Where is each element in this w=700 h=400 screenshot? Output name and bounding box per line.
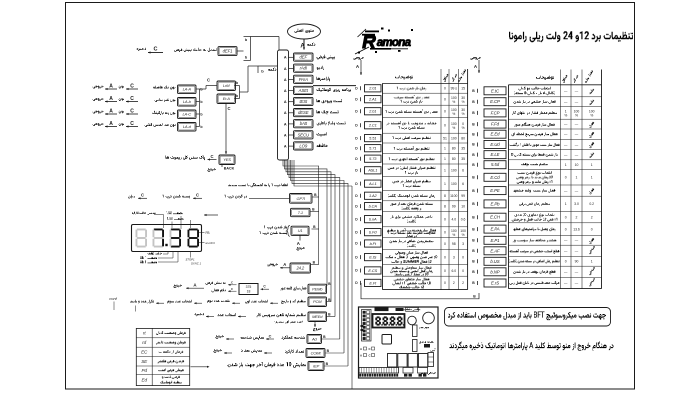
svg-text:E.PA: E.PA — [490, 227, 499, 232]
svg-text:%: % — [590, 114, 593, 118]
svg-text:0: 0 — [444, 124, 446, 128]
svg-text:%: % — [452, 100, 455, 104]
svg-text:0: 0 — [444, 230, 446, 234]
svg-text:E.CS: E.CS — [368, 268, 377, 273]
svg-text:13.6: 13.6 — [573, 227, 580, 231]
svg-text:conf: conf — [109, 296, 117, 301]
svg-text:E.tC: E.tC — [491, 88, 500, 93]
svg-text:SE: SE — [141, 359, 148, 364]
svg-text:LrM: LrM — [223, 83, 230, 88]
svg-text:tESt: tESt — [299, 99, 307, 104]
svg-text:A: A — [360, 353, 362, 357]
svg-text:—: — — [564, 270, 568, 274]
svg-text:A: A — [109, 109, 113, 115]
svg-text:7-1: 7-1 — [298, 210, 303, 215]
svg-text:1100: 1100 — [450, 194, 457, 198]
svg-text:5.71: 5.71 — [369, 146, 376, 151]
svg-text:U1: U1 — [298, 228, 303, 233]
svg-text:dESE: dESE — [298, 110, 309, 115]
svg-text:1: 1 — [444, 182, 446, 186]
svg-text:C: C — [130, 109, 134, 115]
svg-text:100: 100 — [451, 136, 457, 140]
svg-text:Ad: Ad — [311, 336, 318, 341]
svg-text:3: 3 — [462, 242, 464, 246]
svg-text:1: 1 — [565, 202, 567, 206]
svg-text:EC: EC — [141, 350, 148, 355]
svg-text:1: 1 — [591, 176, 593, 180]
svg-text:0: 0 — [591, 227, 593, 231]
svg-text:0: 0 — [462, 269, 464, 273]
svg-text:5.51: 5.51 — [369, 136, 376, 141]
svg-text:0: 0 — [444, 242, 446, 246]
svg-text:SECU: SECU — [298, 132, 310, 137]
svg-text:4.0: 4.0 — [451, 217, 456, 221]
svg-text:2: 2 — [453, 281, 455, 285]
svg-text:C: C — [130, 121, 134, 127]
svg-text:E.AF: E.AF — [490, 248, 500, 253]
svg-text:0: 0 — [444, 255, 446, 259]
svg-text:C: C — [207, 78, 210, 83]
svg-text:b.CA: b.CA — [369, 204, 378, 209]
svg-text:C: C — [154, 47, 158, 53]
svg-text:b.oA: b.oA — [369, 217, 377, 222]
svg-text:%: % — [462, 112, 465, 116]
svg-text:0: 0 — [565, 227, 567, 231]
svg-text:rEP: rEP — [313, 363, 320, 368]
svg-text:LA-C: LA-C — [182, 112, 191, 117]
svg-text:—: — — [564, 122, 568, 126]
svg-text:1: 1 — [591, 260, 593, 264]
svg-text:5.5d: 5.5d — [491, 162, 500, 167]
svg-text:80: 80 — [461, 136, 465, 140]
svg-text:2.A1: 2.A1 — [368, 97, 377, 102]
svg-text:dEF1: dEF1 — [223, 49, 233, 54]
svg-text:0: 0 — [444, 217, 446, 221]
svg-text:0: 0 — [444, 281, 446, 285]
svg-text:b.NP: b.NP — [490, 269, 499, 274]
svg-text:Pd: Pd — [141, 368, 147, 373]
svg-text:b.Ft: b.Ft — [370, 241, 377, 246]
svg-text:LA-d: LA-d — [183, 124, 192, 129]
svg-text:bAtt: bAtt — [300, 121, 308, 126]
svg-text:rAdI: rAdI — [300, 66, 308, 71]
svg-text:E.CH: E.CH — [490, 215, 501, 220]
svg-text:C: C — [231, 287, 233, 291]
svg-text:C: C — [231, 280, 233, 284]
svg-text:1: 1 — [444, 147, 446, 151]
svg-text:A: A — [284, 56, 287, 60]
svg-text:FB: FB — [205, 231, 209, 235]
svg-text:2.01: 2.01 — [368, 86, 376, 91]
svg-text:E.P1: E.P1 — [491, 238, 501, 243]
svg-text:A: A — [109, 96, 113, 102]
svg-text:—: — — [564, 189, 568, 193]
svg-text:—: — — [564, 239, 568, 243]
svg-text:80: 80 — [452, 157, 456, 161]
svg-text:A: A — [360, 347, 362, 351]
svg-text:35: 35 — [461, 147, 465, 151]
svg-text:%: % — [462, 233, 465, 237]
svg-text:Er.A: Er.A — [223, 96, 231, 101]
svg-text:1: 1 — [576, 176, 578, 180]
svg-text:6: 6 — [462, 182, 464, 186]
svg-text:C: C — [368, 353, 370, 357]
svg-text:0: 0 — [444, 110, 446, 114]
svg-text:b.US: b.US — [490, 259, 499, 264]
svg-text:1: 1 — [444, 169, 446, 173]
svg-text:1: 1 — [444, 157, 446, 161]
svg-text:35: 35 — [461, 157, 465, 161]
svg-text:51: 51 — [443, 136, 447, 140]
svg-text:E.tS: E.tS — [369, 255, 376, 260]
svg-text:%: % — [462, 126, 465, 130]
svg-text:LA-A: LA-A — [183, 87, 192, 92]
svg-text:E.CP: E.CP — [490, 99, 500, 104]
svg-text:0: 0 — [565, 216, 567, 220]
svg-text:E.Ft: E.Ft — [369, 280, 377, 285]
svg-text:E.rS: E.rS — [491, 281, 499, 286]
svg-text:A: A — [109, 84, 113, 90]
svg-text:2: 2 — [576, 216, 578, 220]
svg-text:0.6: 0.6 — [461, 217, 466, 221]
svg-text:0: 0 — [444, 98, 446, 102]
svg-text:E.Ud: E.Ud — [490, 142, 500, 147]
svg-text:15: 15 — [461, 87, 465, 91]
svg-text:99: 99 — [452, 204, 456, 208]
svg-text:LA-b: LA-b — [183, 99, 192, 104]
svg-text:A: A — [284, 67, 287, 71]
svg-text:—: — — [564, 133, 568, 137]
svg-text:MEEd: MEEd — [312, 314, 323, 319]
svg-text:E.LE: E.LE — [491, 152, 500, 157]
svg-text:COMt: COMt — [311, 350, 322, 355]
svg-text:A: A — [284, 89, 287, 93]
svg-text:%: % — [462, 100, 465, 104]
svg-text:100: 100 — [451, 182, 457, 186]
svg-text:C: C — [196, 193, 199, 198]
svg-text:ASL1: ASL1 — [367, 168, 377, 173]
svg-text:%: % — [452, 112, 455, 116]
svg-text:C: C — [227, 106, 230, 111]
svg-text:80: 80 — [452, 147, 456, 151]
svg-text:0: 0 — [565, 176, 567, 180]
svg-text:0: 0 — [444, 269, 446, 273]
svg-text:A.L1: A.L1 — [368, 181, 377, 186]
svg-text:—: — — [564, 143, 568, 147]
svg-text:10: 10 — [461, 204, 465, 208]
svg-text:A: A — [284, 100, 287, 104]
svg-text:PEMb: PEMb — [312, 286, 323, 291]
svg-text:—: — — [564, 100, 568, 104]
svg-text:PCM: PCM — [313, 299, 322, 304]
svg-text:A: A — [300, 44, 305, 50]
svg-text:YES: YES — [223, 157, 231, 162]
svg-text:an-CF3: an-CF3 — [205, 241, 215, 245]
svg-text:1: 1 — [565, 163, 567, 167]
svg-text:C: C — [130, 96, 134, 102]
svg-text:C: C — [130, 84, 134, 90]
svg-text:rd: rd — [142, 340, 146, 345]
svg-text:2.b1: 2.b1 — [368, 109, 376, 114]
svg-text:amona: amona — [377, 37, 412, 49]
svg-text:10: 10 — [575, 163, 579, 167]
svg-text:0: 0 — [444, 87, 446, 91]
svg-text:98: 98 — [452, 242, 456, 246]
svg-text:%: % — [452, 126, 455, 130]
svg-text:2: 2 — [462, 281, 464, 285]
svg-text:GP7I: GP7I — [296, 196, 306, 201]
svg-text:C: C — [141, 193, 144, 198]
svg-text:6: 6 — [462, 169, 464, 173]
svg-text:C: C — [269, 334, 272, 338]
svg-text:24.2: 24.2 — [295, 266, 304, 271]
svg-text:A: A — [284, 111, 287, 115]
svg-text:ASEt: ASEt — [298, 88, 309, 93]
svg-text:99: 99 — [461, 194, 465, 198]
svg-text:dEF: dEF — [300, 55, 308, 60]
svg-text:A: A — [284, 78, 287, 82]
svg-text:E.Cd: E.Cd — [490, 175, 500, 180]
svg-text:A: A — [284, 133, 287, 137]
svg-text:F.CP: F.CP — [491, 110, 500, 115]
svg-text:3: 3 — [453, 255, 455, 259]
svg-text:BACK: BACK — [224, 167, 235, 171]
svg-text:100: 100 — [451, 169, 457, 173]
svg-text:E.Ed: E.Ed — [491, 132, 501, 137]
svg-text:1.A2: 1.A2 — [369, 193, 378, 198]
svg-text:99 s: 99 s — [451, 87, 458, 91]
svg-text:Ed: Ed — [141, 378, 147, 383]
svg-text:A: A — [284, 145, 287, 149]
svg-text:0: 0 — [462, 255, 464, 259]
svg-text:8: 8 — [444, 194, 446, 198]
svg-text:18: 18 — [247, 289, 251, 293]
svg-text:%: % — [452, 233, 455, 237]
svg-text:E.Pb: E.Pb — [491, 201, 501, 206]
svg-text:%: % — [564, 114, 567, 118]
svg-text:—: — — [564, 89, 568, 93]
svg-text:0.2: 0.2 — [589, 202, 594, 206]
svg-text:LO9: LO9 — [299, 143, 307, 148]
svg-text:C: C — [368, 347, 370, 351]
svg-text:A: A — [284, 122, 287, 126]
svg-text:5.73: 5.73 — [369, 156, 377, 161]
svg-text:%: % — [575, 114, 578, 118]
svg-text:F.Fd: F.Fd — [491, 122, 500, 127]
svg-text:3.0: 3.0 — [574, 202, 579, 206]
svg-text:6.0: 6.0 — [451, 269, 456, 273]
svg-text:—: — — [564, 153, 568, 157]
svg-text:SYNC 1: SYNC 1 — [191, 262, 202, 266]
svg-text:8: 8 — [444, 204, 446, 208]
svg-text:0: 0 — [565, 260, 567, 264]
svg-text:2.C1: 2.C1 — [368, 123, 377, 128]
svg-text:375: 375 — [246, 285, 252, 289]
svg-text:90: 90 — [575, 260, 579, 264]
svg-text:—: — — [564, 249, 568, 253]
svg-text:E.PE: E.PE — [490, 188, 500, 193]
svg-text:—: — — [564, 281, 568, 285]
svg-text:A: A — [283, 262, 286, 267]
svg-text:1: 1 — [591, 163, 593, 167]
svg-text:2: 2 — [591, 216, 593, 220]
svg-text:A: A — [109, 121, 113, 127]
svg-text:b.Fd: b.Fd — [369, 230, 377, 235]
svg-text:PArA: PArA — [299, 77, 308, 82]
svg-text:C: C — [210, 154, 213, 159]
